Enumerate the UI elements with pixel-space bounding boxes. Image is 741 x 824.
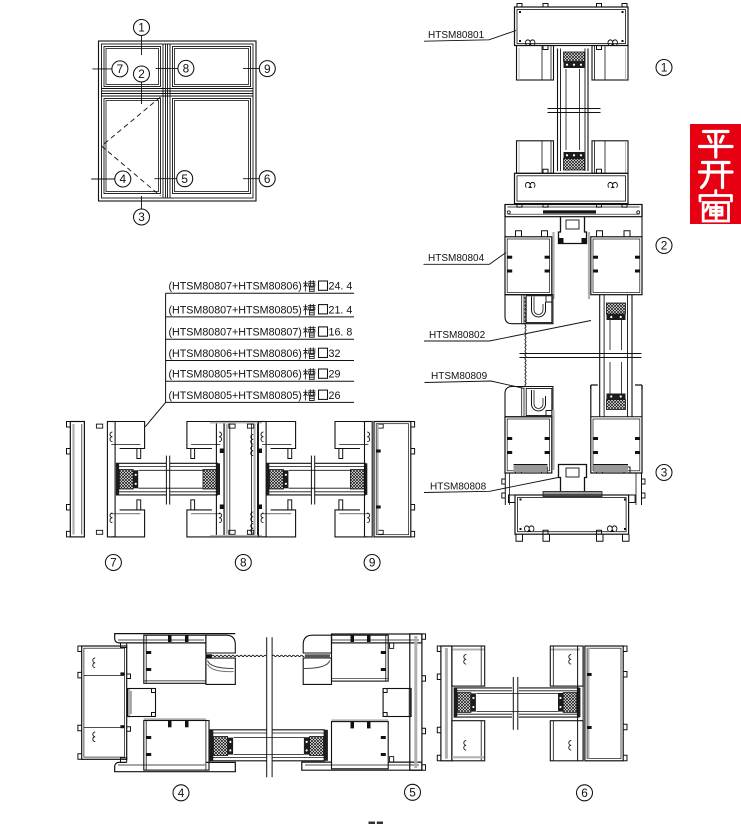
svg-text:2: 2: [661, 239, 668, 253]
svg-text:3: 3: [661, 466, 668, 480]
svg-text:1: 1: [138, 21, 145, 35]
svg-text:4: 4: [120, 172, 127, 186]
svg-text:2: 2: [138, 67, 145, 81]
svg-text:8: 8: [183, 62, 190, 76]
svg-text:(HTSM80806+HTSM80806): (HTSM80806+HTSM80806): [169, 348, 302, 360]
svg-text:16. 8: 16. 8: [329, 327, 353, 339]
svg-text:(HTSM80807+HTSM80805): (HTSM80807+HTSM80805): [169, 304, 302, 316]
svg-text:4: 4: [178, 786, 185, 800]
svg-text:6: 6: [264, 172, 271, 186]
svg-text:8: 8: [240, 556, 247, 570]
svg-text:24. 4: 24. 4: [329, 281, 353, 293]
svg-text:(HTSM80805+HTSM80805): (HTSM80805+HTSM80805): [169, 390, 302, 402]
svg-text:HTSM80804: HTSM80804: [428, 253, 485, 264]
svg-text:HTSM80801: HTSM80801: [428, 30, 485, 41]
svg-text:HTSM80809: HTSM80809: [431, 371, 488, 382]
svg-text:HTSM80808: HTSM80808: [430, 482, 487, 493]
svg-text:(HTSM80805+HTSM80806): (HTSM80805+HTSM80806): [169, 369, 302, 381]
svg-text:(HTSM80807+HTSM80806): (HTSM80807+HTSM80806): [169, 281, 302, 293]
svg-text:9: 9: [264, 62, 271, 76]
svg-text:32: 32: [329, 348, 341, 360]
svg-text:21. 4: 21. 4: [329, 304, 353, 316]
svg-text:5: 5: [181, 172, 188, 186]
svg-text:9: 9: [369, 556, 376, 570]
svg-text:(HTSM80807+HTSM80807): (HTSM80807+HTSM80807): [169, 327, 302, 339]
svg-text:3: 3: [138, 210, 145, 224]
svg-text:HTSM80802: HTSM80802: [429, 330, 486, 341]
svg-text:5: 5: [409, 786, 416, 800]
svg-text:1: 1: [661, 61, 668, 75]
svg-text:26: 26: [329, 390, 341, 402]
svg-text:6: 6: [581, 786, 588, 800]
svg-text:29: 29: [329, 369, 341, 381]
svg-text:7: 7: [110, 556, 117, 570]
svg-text:7: 7: [117, 62, 124, 76]
